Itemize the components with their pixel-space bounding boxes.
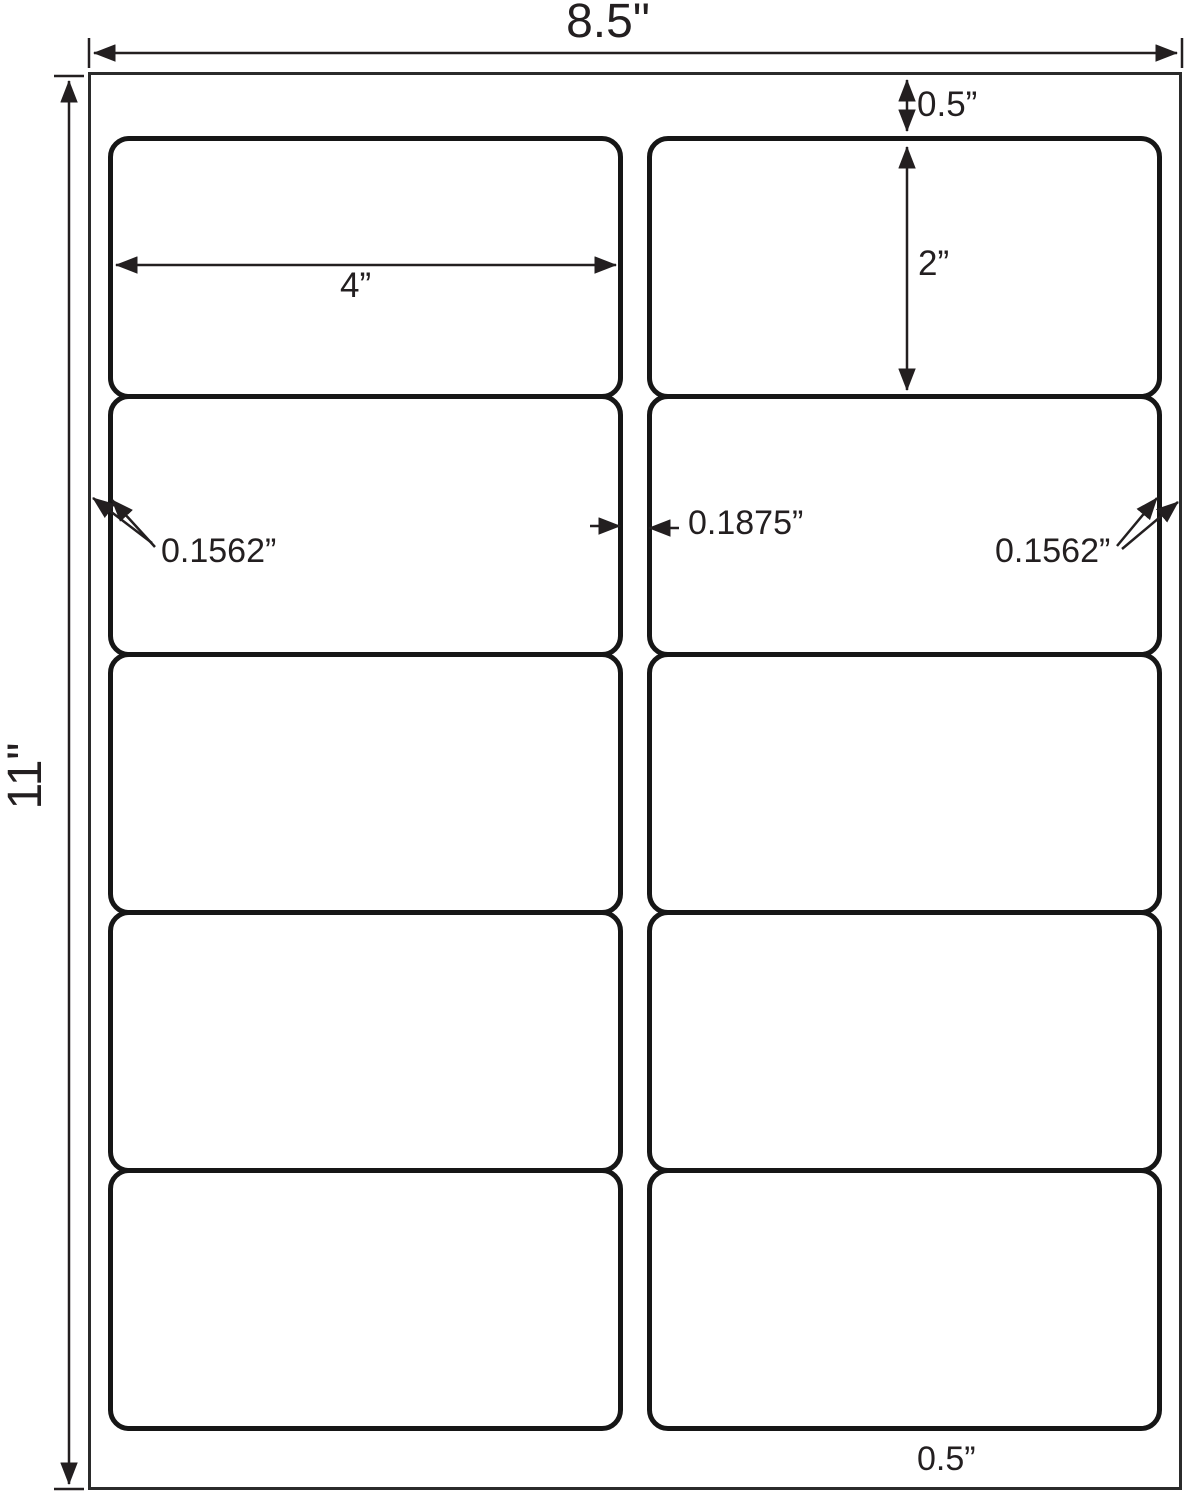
label-cell-r1-c2 xyxy=(647,136,1162,399)
top-margin-dimension-label: 0.5” xyxy=(917,87,977,122)
column-gap-dimension-label: 0.1875” xyxy=(688,506,803,540)
label-cell-r5-c1 xyxy=(108,1168,623,1431)
label-cell-r4-c1 xyxy=(108,910,623,1173)
label-cell-r3-c2 xyxy=(647,652,1162,915)
label-cell-r5-c2 xyxy=(647,1168,1162,1431)
sheet-height-dimension-label: 11" xyxy=(0,726,52,826)
bottom-margin-dimension-label: 0.5” xyxy=(917,1442,976,1476)
left-margin-dimension-label: 0.1562” xyxy=(161,534,276,568)
label-cell-r3-c1 xyxy=(108,652,623,915)
label-cell-r2-c1 xyxy=(108,394,623,657)
right-margin-dimension-label: 0.1562” xyxy=(995,534,1110,568)
sheet-width-dimension-label: 8.5" xyxy=(528,0,688,46)
label-cell-r4-c2 xyxy=(647,910,1162,1173)
label-height-dimension-label: 2” xyxy=(918,246,949,281)
label-sheet-diagram: 8.5" 11" 0.5” 2” 4” 0.1562” 0.1875” 0.15… xyxy=(0,0,1189,1500)
label-width-dimension-label: 4” xyxy=(340,268,371,303)
